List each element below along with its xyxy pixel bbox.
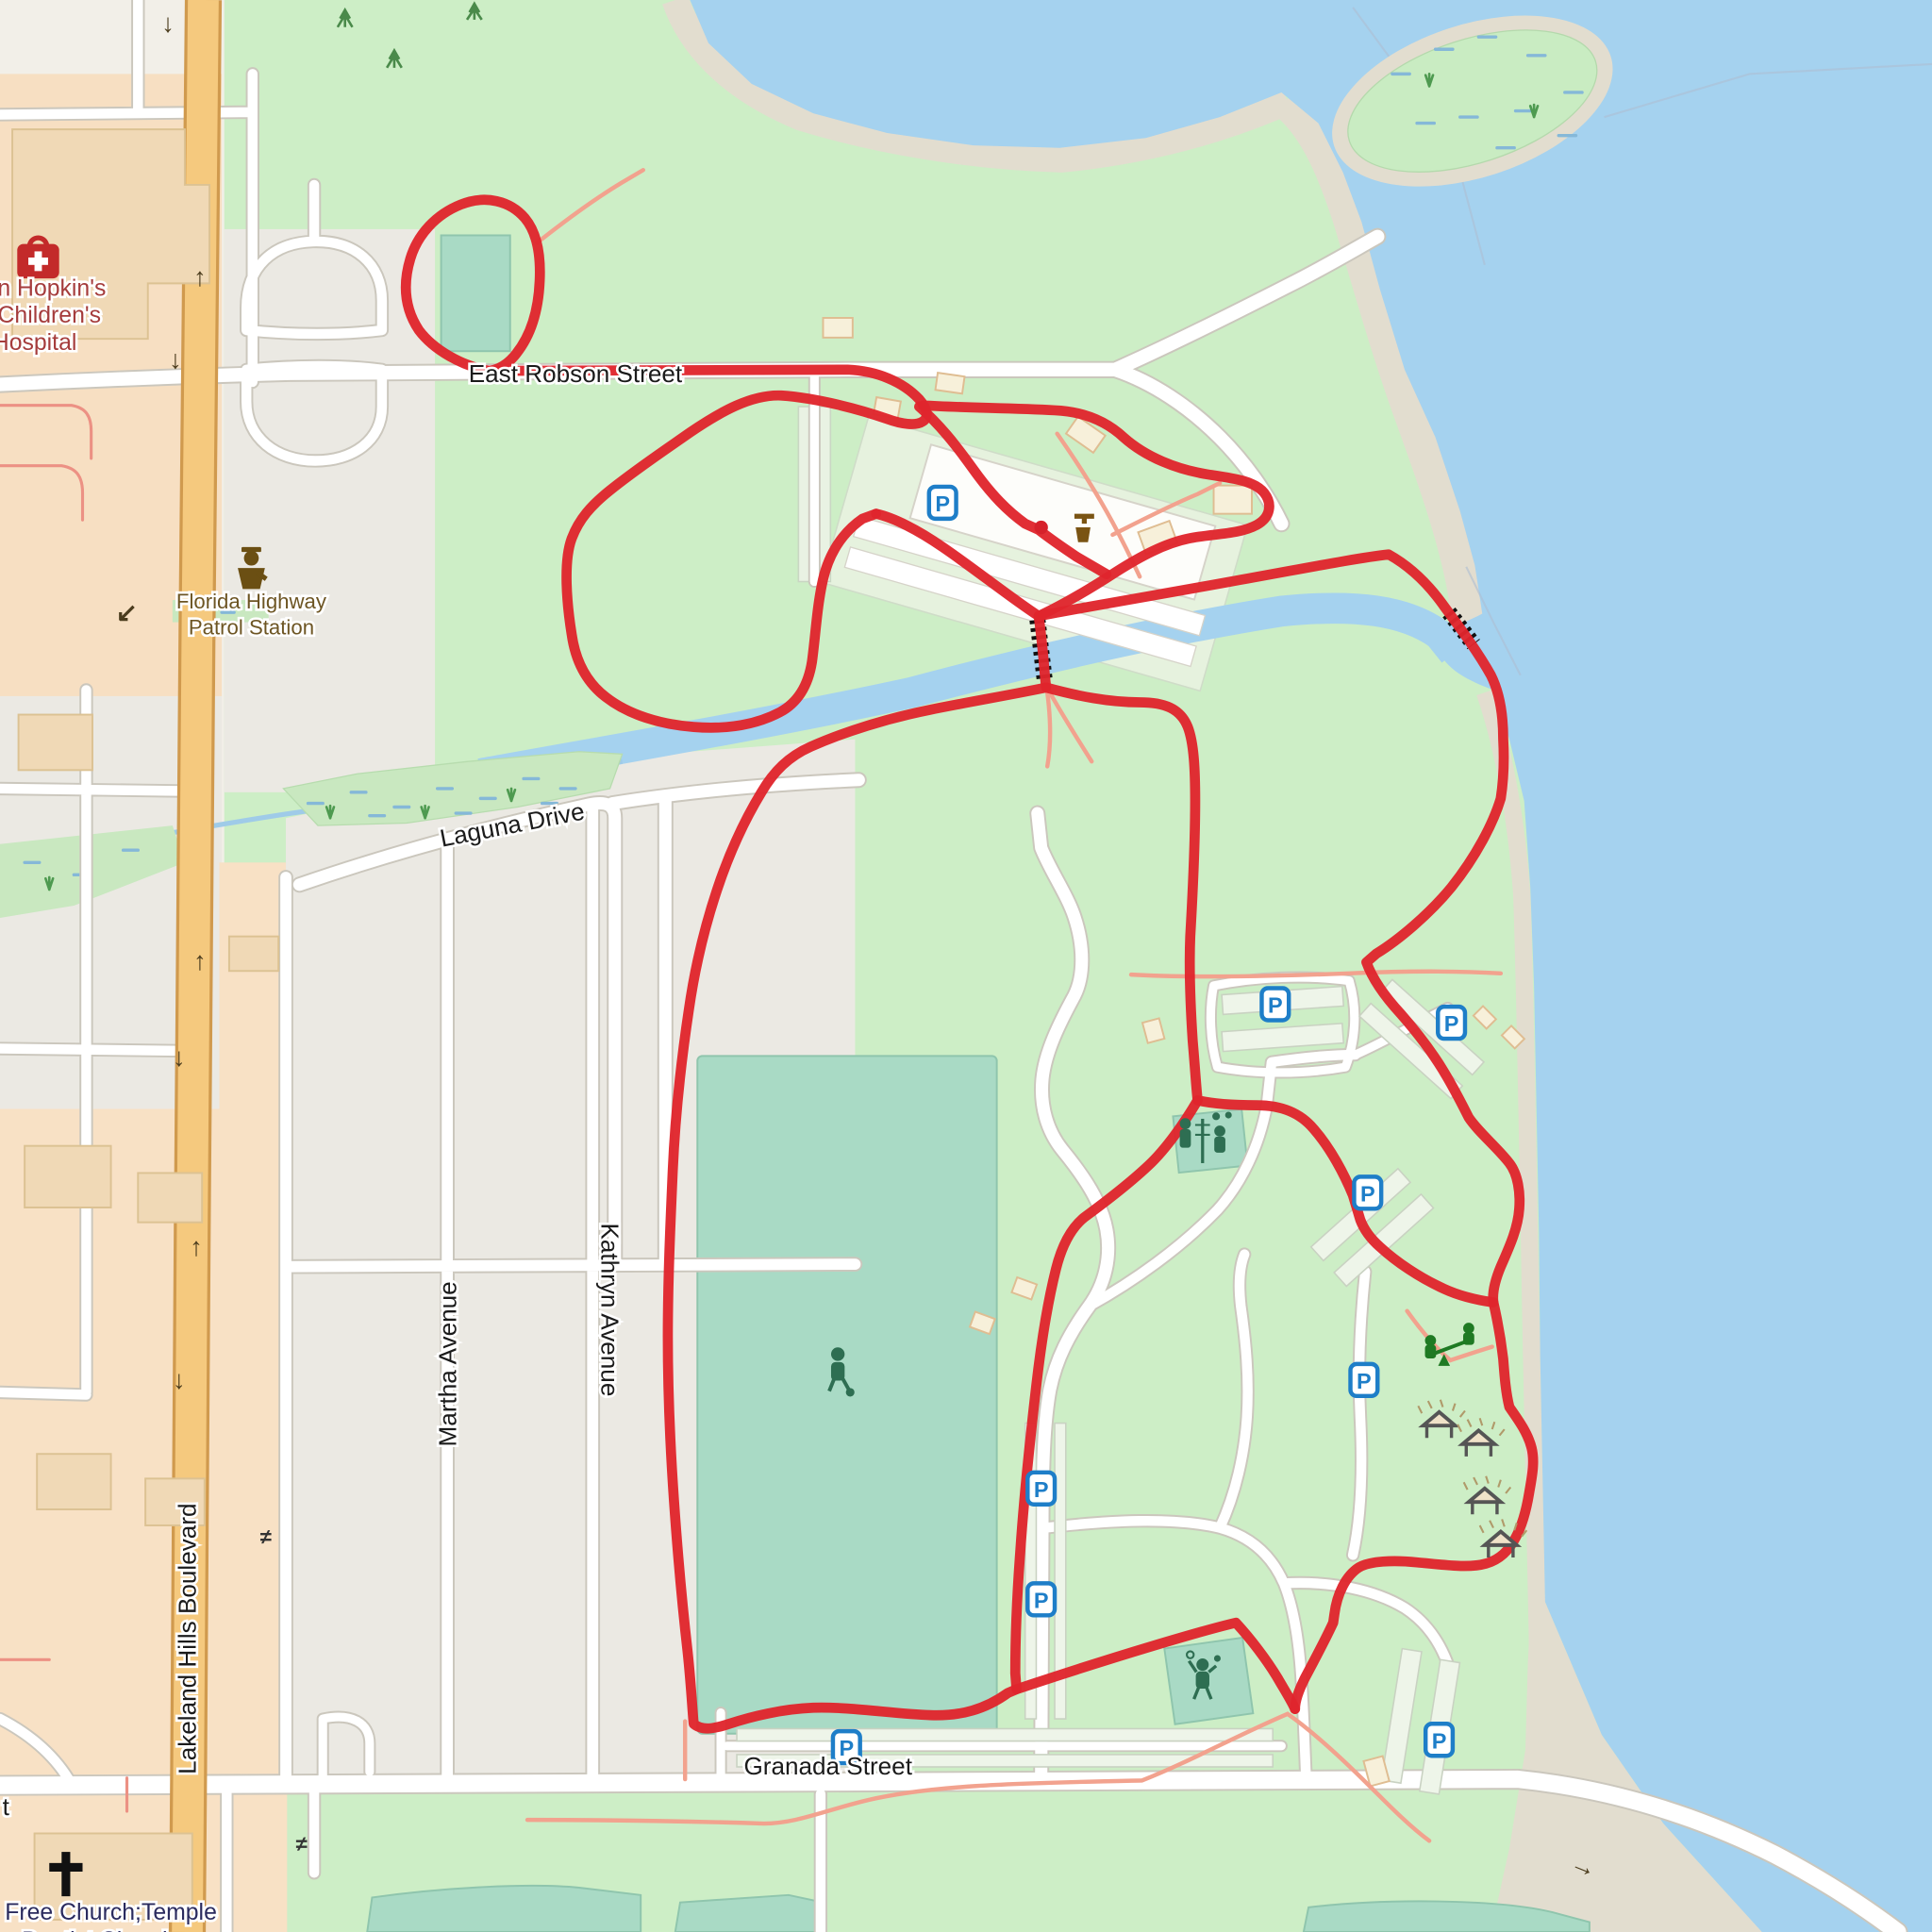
level-crossing-icon: ≠ [295, 1832, 307, 1856]
svg-text:P: P [1034, 1588, 1049, 1612]
svg-text:P: P [935, 491, 950, 516]
street-label-kathryn: Kathryn Avenue [595, 1223, 624, 1396]
parking-icon: P [1027, 1583, 1055, 1615]
route-point-dot [1034, 521, 1047, 534]
svg-text:Baptist Church: Baptist Church [22, 1928, 175, 1932]
pitch-north [441, 235, 510, 351]
up-arrow-icon: ↑ [193, 262, 207, 291]
svg-text:P: P [1357, 1369, 1372, 1393]
svg-text:P: P [1432, 1728, 1447, 1753]
level-crossing-icon: ≠ [260, 1525, 272, 1549]
street-label-east-robson: East Robson Street [469, 359, 683, 388]
pitch-south-1 [367, 1886, 641, 1932]
parking-icon: P [929, 487, 957, 519]
street-label-fragment: t [3, 1792, 10, 1821]
up-arrow-icon: ↑ [193, 946, 207, 975]
parking-icon: P [1425, 1724, 1453, 1756]
left-down-arrow-icon: ↙ [116, 597, 138, 626]
down-arrow-icon: ↓ [173, 1365, 186, 1394]
map-view[interactable]: P P P P P P P P P ↓ ↑ ↓ ↑ ↓ ↑ ↓ ↙ → ≠ ≠ … [0, 0, 1932, 1932]
svg-text:Free Church;Temple: Free Church;Temple [5, 1900, 217, 1925]
granada-aisle-1 [737, 1728, 1273, 1740]
down-arrow-icon: ↓ [173, 1042, 186, 1072]
svg-text:n Hopkin's: n Hopkin's [0, 275, 106, 301]
svg-text:P: P [1268, 993, 1283, 1018]
down-arrow-icon: ↓ [161, 8, 175, 38]
up-arrow-icon: ↑ [190, 1232, 203, 1261]
street-label-lakeland-hills: Lakeland Hills Boulevard [174, 1503, 202, 1774]
svg-text:P: P [1444, 1011, 1459, 1036]
svg-text:Children's: Children's [0, 303, 101, 328]
parking-icon: P [1351, 1364, 1378, 1396]
parking-icon: P [1261, 989, 1289, 1021]
parking-icon: P [1438, 1007, 1465, 1039]
parking-icon: P [1027, 1473, 1055, 1505]
svg-text:Patrol Station: Patrol Station [189, 616, 314, 640]
residential-sliver [219, 862, 288, 1784]
parking-icon: P [1354, 1176, 1381, 1208]
pitch-south-2 [675, 1895, 824, 1932]
svg-text:Hospital: Hospital [0, 330, 76, 356]
map-canvas[interactable]: P P P P P P P P P ↓ ↑ ↓ ↑ ↓ ↑ ↓ ↙ → ≠ ≠ … [0, 0, 1932, 1932]
svg-text:Florida Highway: Florida Highway [176, 590, 327, 613]
street-label-martha: Martha Avenue [433, 1281, 461, 1446]
svg-text:P: P [1034, 1477, 1049, 1502]
svg-text:P: P [1360, 1181, 1375, 1206]
down-arrow-icon: ↓ [169, 345, 182, 375]
street-label-granada: Granada Street [743, 1752, 912, 1780]
